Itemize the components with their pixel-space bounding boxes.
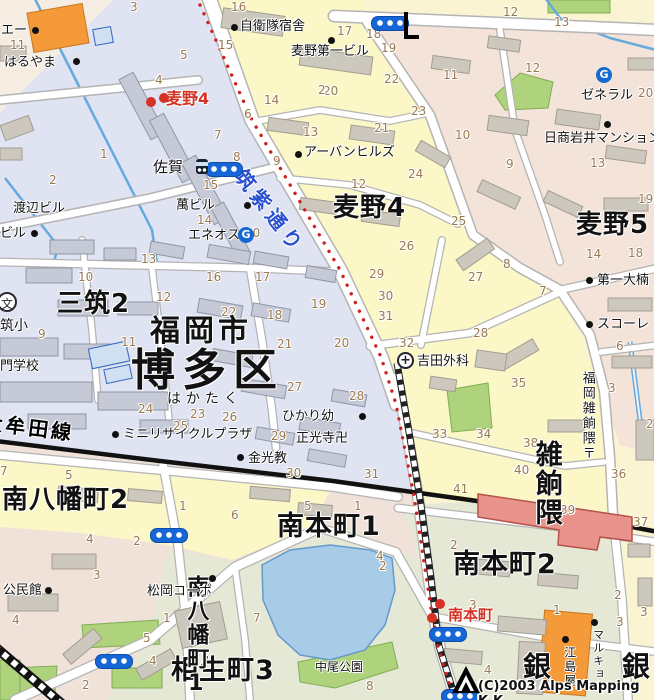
block-number: 14 <box>197 214 212 227</box>
block-number: 29 <box>271 430 286 443</box>
poi-label: 吉田外科 <box>417 355 469 369</box>
block-number: 13 <box>303 126 318 139</box>
poi-label: 福岡雑餉隈〒 <box>580 371 594 461</box>
bus-stop-label: 南本町 <box>448 608 493 624</box>
block-number: 4 <box>149 655 157 668</box>
block-number: 7 <box>253 612 261 625</box>
bus-stop-dot-icon <box>146 97 156 107</box>
poi-dot-icon <box>591 619 598 626</box>
block-number: 27 <box>468 271 483 284</box>
hospital-icon: + <box>397 352 414 369</box>
block-number: 7 <box>214 129 222 142</box>
block-number: 4 <box>12 614 20 627</box>
block-number: 13 <box>590 157 605 170</box>
poi-label: エー <box>1 24 27 38</box>
block-number: 29 <box>369 268 384 281</box>
block-number: 20 <box>638 87 653 100</box>
poi-label: スコーレ <box>597 318 649 332</box>
traffic-signal-icon <box>95 654 133 669</box>
traffic-signal-icon <box>429 627 467 642</box>
poi-label: 中尾公園 <box>315 661 363 674</box>
block-number: 8 <box>366 680 374 693</box>
district-label: 福岡市 <box>150 316 252 348</box>
block-number: 2 <box>133 535 141 548</box>
north-arrow-inner2 <box>461 682 471 692</box>
block-number: 1 <box>179 500 187 513</box>
traffic-signal-icon <box>205 162 243 177</box>
block-number: 6 <box>244 108 252 121</box>
block-number: 22 <box>384 73 399 86</box>
block-number: 20 <box>334 337 349 350</box>
block-number: 31 <box>378 310 393 323</box>
poi-label: アーバンヒルズ <box>304 146 395 160</box>
poi-label: ビル <box>0 227 26 241</box>
block-number: 13 <box>141 253 156 266</box>
district-label: 麦野5 <box>576 212 649 240</box>
gas-station-icon: G <box>238 227 254 243</box>
block-number: 9 <box>38 328 46 341</box>
block-number: 18 <box>628 247 643 260</box>
block-number: 17 <box>255 271 270 284</box>
poi-label: 門学校 <box>0 360 39 374</box>
map-base-layers <box>0 0 654 700</box>
poi-label: 第一大楠 <box>597 274 649 288</box>
block-number: 26 <box>222 411 237 424</box>
block-number: 31 <box>364 468 379 481</box>
poi-label: ゼネラル <box>581 89 633 103</box>
poi-dot-icon <box>604 121 611 128</box>
bus-stop-dot-icon <box>427 613 437 623</box>
block-number: 3 <box>93 569 101 582</box>
district-label: 麦野4 <box>333 195 406 223</box>
block-number: 40 <box>514 464 529 477</box>
traffic-signal-icon <box>150 528 188 543</box>
block-number: 6 <box>616 340 624 353</box>
poi-dot-icon <box>359 413 366 420</box>
block-number: 16 <box>206 271 221 284</box>
poi-dot-icon <box>209 575 216 582</box>
block-number: 5 <box>143 632 151 645</box>
bus-stop-sign-icon <box>196 159 208 174</box>
block-number: 4 <box>484 664 492 677</box>
block-number: 30 <box>378 290 393 303</box>
block-number: 23 <box>190 408 205 421</box>
map-canvas: 3718432124325245141632475393736414023638… <box>0 0 654 700</box>
poi-label: 萬ビル <box>176 199 215 213</box>
block-number: 12 <box>503 6 518 19</box>
block-number: 3 <box>640 606 648 619</box>
block-number: 21 <box>374 122 389 135</box>
poi-label: 渡辺ビル <box>13 202 65 216</box>
block-number: 15 <box>218 39 233 52</box>
poi-dot-icon <box>562 636 569 643</box>
district-label: 銀 <box>622 652 651 682</box>
poi-label: 日商岩井マンション <box>544 132 654 146</box>
block-number: 9 <box>506 158 514 171</box>
gas-station-icon: G <box>596 67 612 83</box>
block-number: 19 <box>311 298 326 311</box>
block-number: 14 <box>264 94 279 107</box>
district-label: 銀 <box>523 652 552 682</box>
block-number: 10 <box>78 271 93 284</box>
poi-label: 松岡コーポ <box>147 585 212 599</box>
block-number: 37 <box>633 516 648 529</box>
poi-dot-icon <box>112 431 119 438</box>
district-label: 南本町1 <box>277 513 381 542</box>
block-number: 4 <box>155 74 163 87</box>
block-number: 3 <box>616 616 624 629</box>
poi-dot-icon <box>73 58 80 65</box>
block-number: 2 <box>49 174 57 187</box>
poi-dot-icon <box>295 151 302 158</box>
block-number: 16 <box>231 1 246 14</box>
poi-label: はるやま <box>4 56 56 70</box>
block-number: 3 <box>130 1 138 14</box>
poi-dot-icon <box>328 37 335 44</box>
poi-label: 金光教 <box>248 452 287 466</box>
block-number: 7 <box>539 285 547 298</box>
block-number: 12 <box>156 291 171 304</box>
block-number: 1 <box>100 148 108 161</box>
block-number: 33 <box>432 428 447 441</box>
bus-stop-label: 麦野4 <box>166 91 209 108</box>
block-number: 35 <box>511 377 526 390</box>
poi-label: 正光寺卍 <box>296 432 348 446</box>
district-label: 雑餉隈 <box>531 440 560 527</box>
block-number: 28 <box>473 327 488 340</box>
district-label: 三筑2 <box>57 291 130 319</box>
block-number: 23 <box>411 105 426 118</box>
north-arrow-icon <box>452 666 480 693</box>
poi-label: 公民館 <box>3 584 42 598</box>
copyright-text: (C)2003 Alps Mapping K.K. <box>478 679 654 700</box>
block-number: 5 <box>180 49 188 62</box>
poi-label: 筑小 <box>0 319 28 334</box>
block-number: 27 <box>287 381 302 394</box>
block-number: 12 <box>525 62 540 75</box>
block-number: 36 <box>611 468 626 481</box>
bus-stop-dot-icon <box>159 93 169 103</box>
poi-dot-icon <box>237 454 244 461</box>
block-number: 24 <box>138 403 153 416</box>
poi-label: 麦野第一ビル <box>291 45 369 59</box>
block-number: 8 <box>503 258 511 271</box>
block-number: 2 <box>646 418 654 431</box>
block-number: 9 <box>273 155 281 168</box>
block-number: 30 <box>286 467 301 480</box>
block-number: 4 <box>86 533 94 546</box>
poi-label: エネオス <box>188 229 240 243</box>
poi-label: 佐賀 <box>153 160 183 176</box>
district-label: 博多区 <box>131 348 284 395</box>
block-number: 11 <box>10 39 25 52</box>
poi-label: ひかり幼 <box>282 410 334 424</box>
block-number: 12 <box>351 178 366 191</box>
district-label: 南本町2 <box>453 551 557 580</box>
block-number: 6 <box>231 509 239 522</box>
block-number: 39 <box>560 504 575 517</box>
poi-dot-icon <box>31 230 38 237</box>
block-number: 19 <box>638 193 653 206</box>
bus-stop-dot-icon <box>435 599 445 609</box>
poi-dot-icon <box>586 321 593 328</box>
block-number: 7 <box>0 465 8 478</box>
block-number: 26 <box>399 240 414 253</box>
block-number: 1 <box>553 604 561 617</box>
block-number: 15 <box>203 179 218 192</box>
block-number: 19 <box>381 42 396 55</box>
l-shaped-road-symbol <box>404 12 419 39</box>
block-number: 24 <box>408 168 423 181</box>
poi-dot-icon <box>45 587 52 594</box>
block-number: 34 <box>476 428 491 441</box>
block-number: 11 <box>443 69 458 82</box>
block-number: 1 <box>163 612 171 625</box>
block-number: 18 <box>267 309 282 322</box>
block-number: 10 <box>455 129 470 142</box>
block-number: 32 <box>399 337 414 350</box>
block-number: 17 <box>337 25 352 38</box>
block-number: 25 <box>451 215 466 228</box>
block-number: 2 <box>318 84 326 97</box>
block-number: 41 <box>453 483 468 496</box>
poi-label: 自衛隊宿舎 <box>240 20 305 34</box>
poi-dot-icon <box>244 202 251 209</box>
block-number: 5 <box>65 469 73 482</box>
poi-label: ミニリサイクルプラザ <box>123 428 252 442</box>
block-number: 4 <box>376 550 384 563</box>
block-number: 14 <box>586 248 601 261</box>
block-number: 2 <box>82 679 90 692</box>
poi-dot-icon <box>231 24 238 31</box>
block-number: 2 <box>614 589 622 602</box>
block-number: 28 <box>349 390 364 403</box>
block-number: 13 <box>554 16 569 29</box>
poi-dot-icon <box>32 27 39 34</box>
block-number: 3 <box>608 382 616 395</box>
poi-dot-icon <box>586 277 593 284</box>
district-label: 南八幡町2 <box>2 487 129 515</box>
